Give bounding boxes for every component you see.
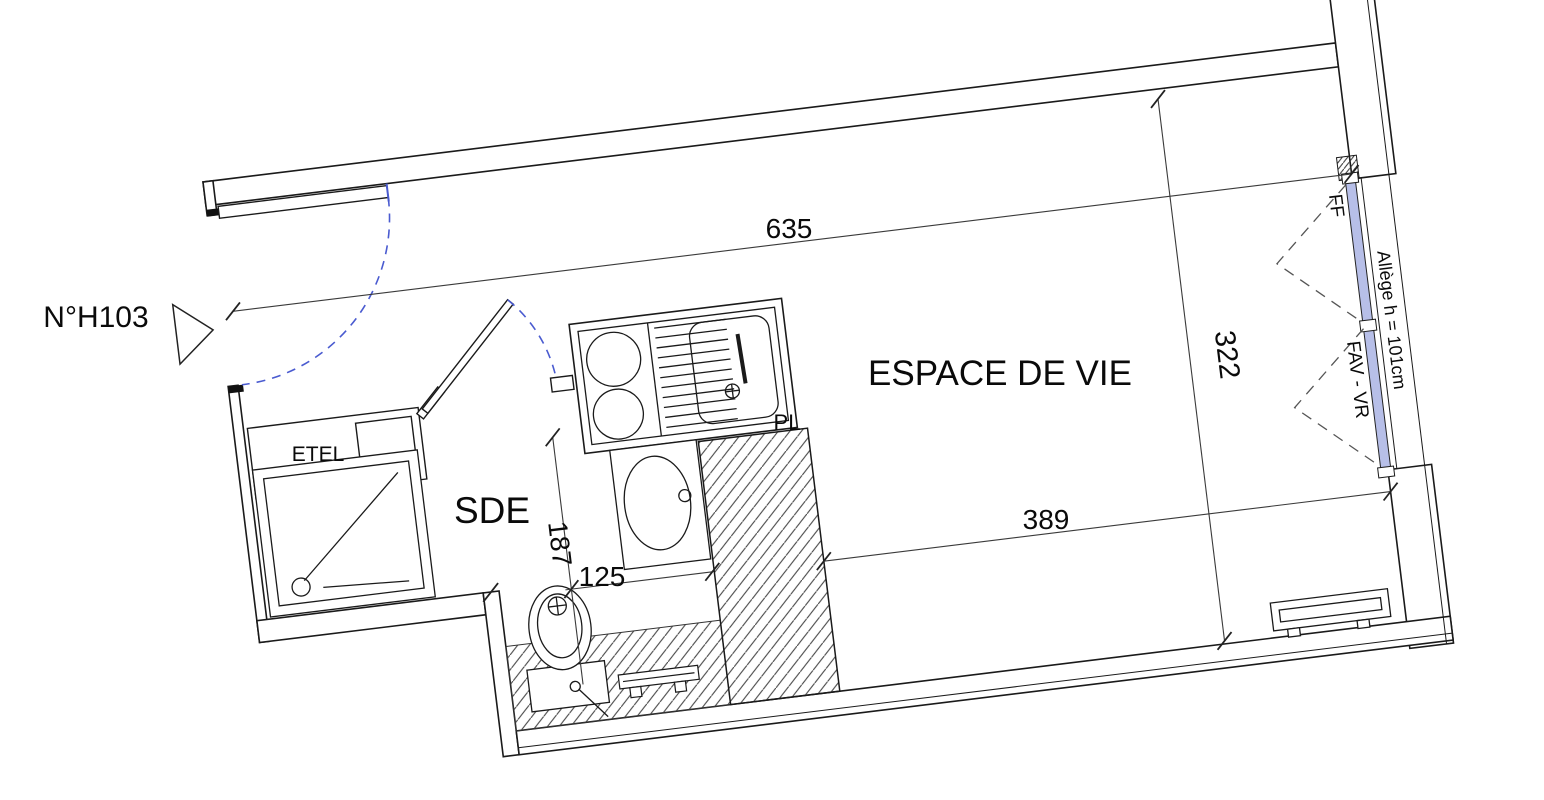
dim-line-389 bbox=[824, 492, 1391, 562]
floor-plan-drawing: 322 187 FF FAV - VR Allège h = 101cm N°H… bbox=[0, 0, 1544, 800]
closet-pl-label: PL bbox=[774, 410, 801, 435]
dim-text-389: 389 bbox=[1023, 504, 1070, 535]
sde-door-leaf bbox=[410, 299, 525, 414]
dim-text-125: 125 bbox=[579, 561, 626, 592]
dim-text-187: 187 bbox=[542, 520, 577, 568]
entry-door-swing-arc bbox=[222, 198, 409, 385]
washbasin bbox=[610, 440, 711, 570]
room-label-living: ESPACE DE VIE bbox=[868, 354, 1132, 393]
room-label-sde: SDE bbox=[454, 490, 530, 531]
unit-number-label: N°H103 bbox=[43, 301, 148, 334]
entrance-arrow-icon bbox=[173, 300, 217, 364]
kitchenette bbox=[569, 298, 797, 453]
etel-label: ETEL bbox=[292, 443, 345, 466]
dim-text-635: 635 bbox=[766, 213, 813, 244]
dim-text-322: 322 bbox=[1208, 329, 1246, 381]
sde-door-swing-arc bbox=[508, 295, 558, 388]
entry-door-jambs bbox=[206, 208, 243, 393]
window-type-label: FF bbox=[1324, 193, 1348, 219]
shower-tray bbox=[252, 450, 435, 617]
facade-wall-upper bbox=[1314, 0, 1396, 179]
floor-plan-page: 322 187 FF FAV - VR Allège h = 101cm N°H… bbox=[0, 0, 1544, 800]
sde-door-strike-stub bbox=[550, 375, 574, 392]
plan-rotated-group: 322 187 FF FAV - VR Allège h = 101cm bbox=[137, 0, 1453, 793]
